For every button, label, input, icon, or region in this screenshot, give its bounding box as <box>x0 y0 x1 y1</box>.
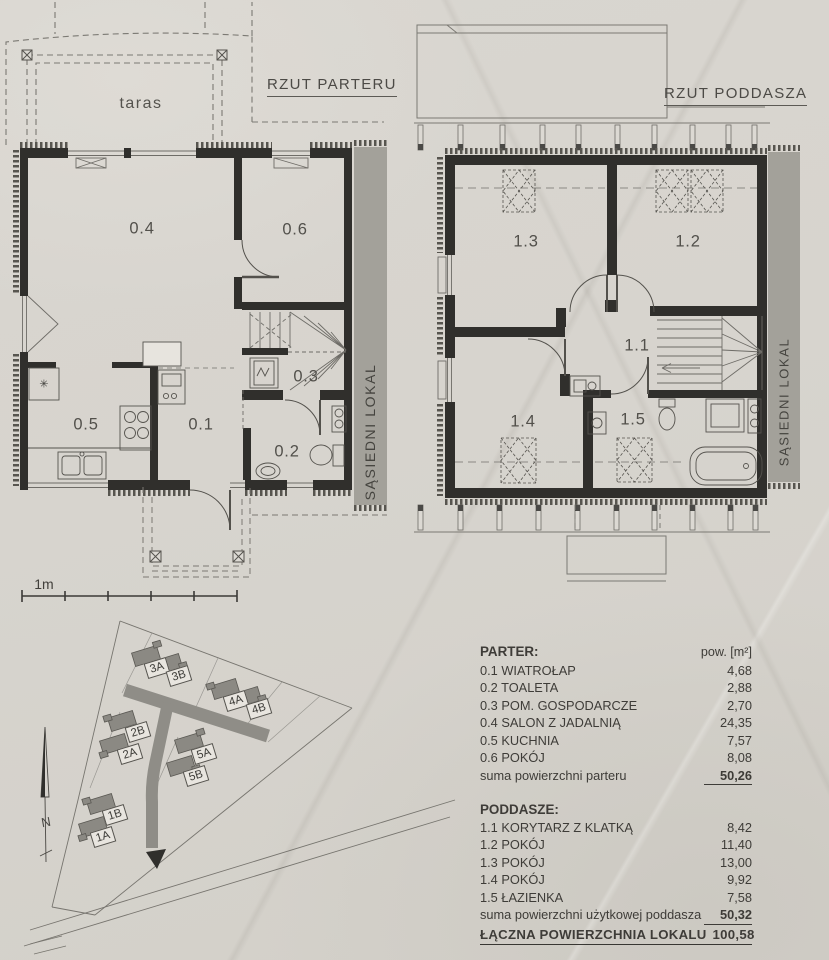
row-value: 11,40 <box>704 836 752 854</box>
windows <box>23 148 314 488</box>
wall-hatch <box>16 143 387 508</box>
row-label: 1.3 POKÓJ <box>480 854 545 872</box>
total-label: ŁĄCZNA POWIERZCHNIA LOKALU <box>480 926 707 944</box>
room-label-1-5: 1.5 <box>620 411 645 430</box>
toilet-icon <box>333 445 344 466</box>
exterior-walls <box>20 148 352 490</box>
parter-header: PARTER: <box>480 643 539 661</box>
entry-porch <box>143 487 387 577</box>
stairs-attic <box>657 316 762 390</box>
poddasze-header: PODDASZE: <box>480 801 559 819</box>
room-label-0-5: 0.5 <box>73 416 98 435</box>
room-label-1-2: 1.2 <box>675 233 700 252</box>
room-label-0-4: 0.4 <box>129 220 154 239</box>
room-label-1-3: 1.3 <box>513 233 538 252</box>
scale-bar-label: 1m <box>34 576 53 592</box>
road-end-arrow-icon <box>146 849 166 869</box>
scale-bar <box>22 590 237 602</box>
water-heater-icon <box>250 358 278 388</box>
legend-row: 1.2 POKÓJ11,40 <box>480 836 752 854</box>
terrace-outline <box>6 2 384 145</box>
legend-row: 0.3 POM. GOSPODARCZE2,70 <box>480 697 752 715</box>
row-label: 1.1 KORYTARZ Z KLATKĄ <box>480 819 633 837</box>
roof-outline <box>414 25 770 123</box>
poddasze-header-row: PODDASZE: <box>480 801 752 819</box>
neighbor-label-attic: SĄSIEDNI LOKAL <box>777 338 792 467</box>
ground-floor-title: RZUT PARTERU <box>267 76 397 97</box>
north-arrow-icon <box>40 727 52 862</box>
row-value: 8,42 <box>704 819 752 837</box>
row-value: 4,68 <box>704 662 752 680</box>
legend-row: 1.1 KORYTARZ Z KLATKĄ8,42 <box>480 819 752 837</box>
total-row: ŁĄCZNA POWIERZCHNIA LOKALU 100,58 <box>480 926 752 946</box>
total-value: 100,58 <box>707 926 755 944</box>
room-label-0-2: 0.2 <box>274 443 299 462</box>
site-plan-drawing <box>24 621 455 954</box>
legend-header-row: PARTER: pow. [m²] <box>480 643 752 662</box>
room-label-0-3: 0.3 <box>293 368 318 387</box>
legend-row: 1.4 POKÓJ9,92 <box>480 871 752 889</box>
row-value: 2,88 <box>704 679 752 697</box>
porch-posts <box>150 551 244 562</box>
rafter-posts-bottom <box>418 505 758 530</box>
room-label-0-6: 0.6 <box>282 221 307 240</box>
freezer-star-icon: ✳ <box>39 378 48 391</box>
area-legend: PARTER: pow. [m²] 0.1 WIATROŁAP4,68 0.2 … <box>480 643 752 945</box>
attic-porch <box>414 505 770 581</box>
row-value: 24,35 <box>704 714 752 732</box>
toilet-icon <box>659 399 675 407</box>
table-icon <box>143 342 181 366</box>
attic-plan-drawing <box>414 25 800 581</box>
sum-value: 50,32 <box>704 906 752 925</box>
row-label: 0.4 SALON Z JADALNIĄ <box>480 714 621 732</box>
room-label-0-1: 0.1 <box>188 416 213 435</box>
row-value: 7,57 <box>704 732 752 750</box>
floor-plan-sheet: RZUT PARTERU RZUT PODDASZA taras 0.4 0.6… <box>0 0 829 960</box>
room-label-1-1: 1.1 <box>624 337 649 356</box>
legend-row: 0.4 SALON Z JADALNIĄ24,35 <box>480 714 752 732</box>
row-label: 0.5 KUCHNIA <box>480 732 559 750</box>
terrace-label: taras <box>119 95 162 113</box>
neighbor-label-ground: SĄSIEDNI LOKAL <box>362 364 378 501</box>
sum-label: suma powierzchni parteru <box>480 767 627 785</box>
legend-row: 0.5 KUCHNIA7,57 <box>480 732 752 750</box>
legend-row: 1.3 POKÓJ13,00 <box>480 854 752 872</box>
area-unit-header: pow. [m²] <box>701 644 752 662</box>
row-value: 2,70 <box>704 697 752 715</box>
row-label: 0.2 TOALETA <box>480 679 558 697</box>
attic-wall-hatch <box>440 148 800 502</box>
row-value: 8,08 <box>704 749 752 767</box>
site-boundary <box>24 621 455 954</box>
bathtub-icon <box>690 447 762 485</box>
row-label: 1.5 ŁAZIENKA <box>480 889 563 907</box>
washbasin-icon <box>256 463 280 479</box>
rafter-posts-top <box>418 125 757 150</box>
legend-row: 0.2 TOALETA2,88 <box>480 679 752 697</box>
wc-fixtures <box>256 406 346 479</box>
poddasze-sum-row: suma powierzchni użytkowej poddasza 50,3… <box>480 906 752 925</box>
row-label: 1.4 POKÓJ <box>480 871 545 889</box>
legend-row: 0.6 POKÓJ8,08 <box>480 749 752 767</box>
row-label: 0.1 WIATROŁAP <box>480 662 576 680</box>
row-label: 0.3 POM. GOSPODARCZE <box>480 697 637 715</box>
legend-row: 1.5 ŁAZIENKA7,58 <box>480 889 752 907</box>
sum-value: 50,26 <box>704 767 752 786</box>
room-label-1-4: 1.4 <box>510 413 535 432</box>
parter-sum-row: suma powierzchni parteru 50,26 <box>480 767 752 786</box>
sum-label: suma powierzchni użytkowej poddasza <box>480 906 701 924</box>
legend-row: 0.1 WIATROŁAP4,68 <box>480 662 752 680</box>
row-label: 1.2 POKÓJ <box>480 836 545 854</box>
row-value: 13,00 <box>704 854 752 872</box>
attic-title: RZUT PODDASZA <box>664 85 807 106</box>
row-value: 9,92 <box>704 871 752 889</box>
row-label: 0.6 POKÓJ <box>480 749 545 767</box>
row-value: 7,58 <box>704 889 752 907</box>
